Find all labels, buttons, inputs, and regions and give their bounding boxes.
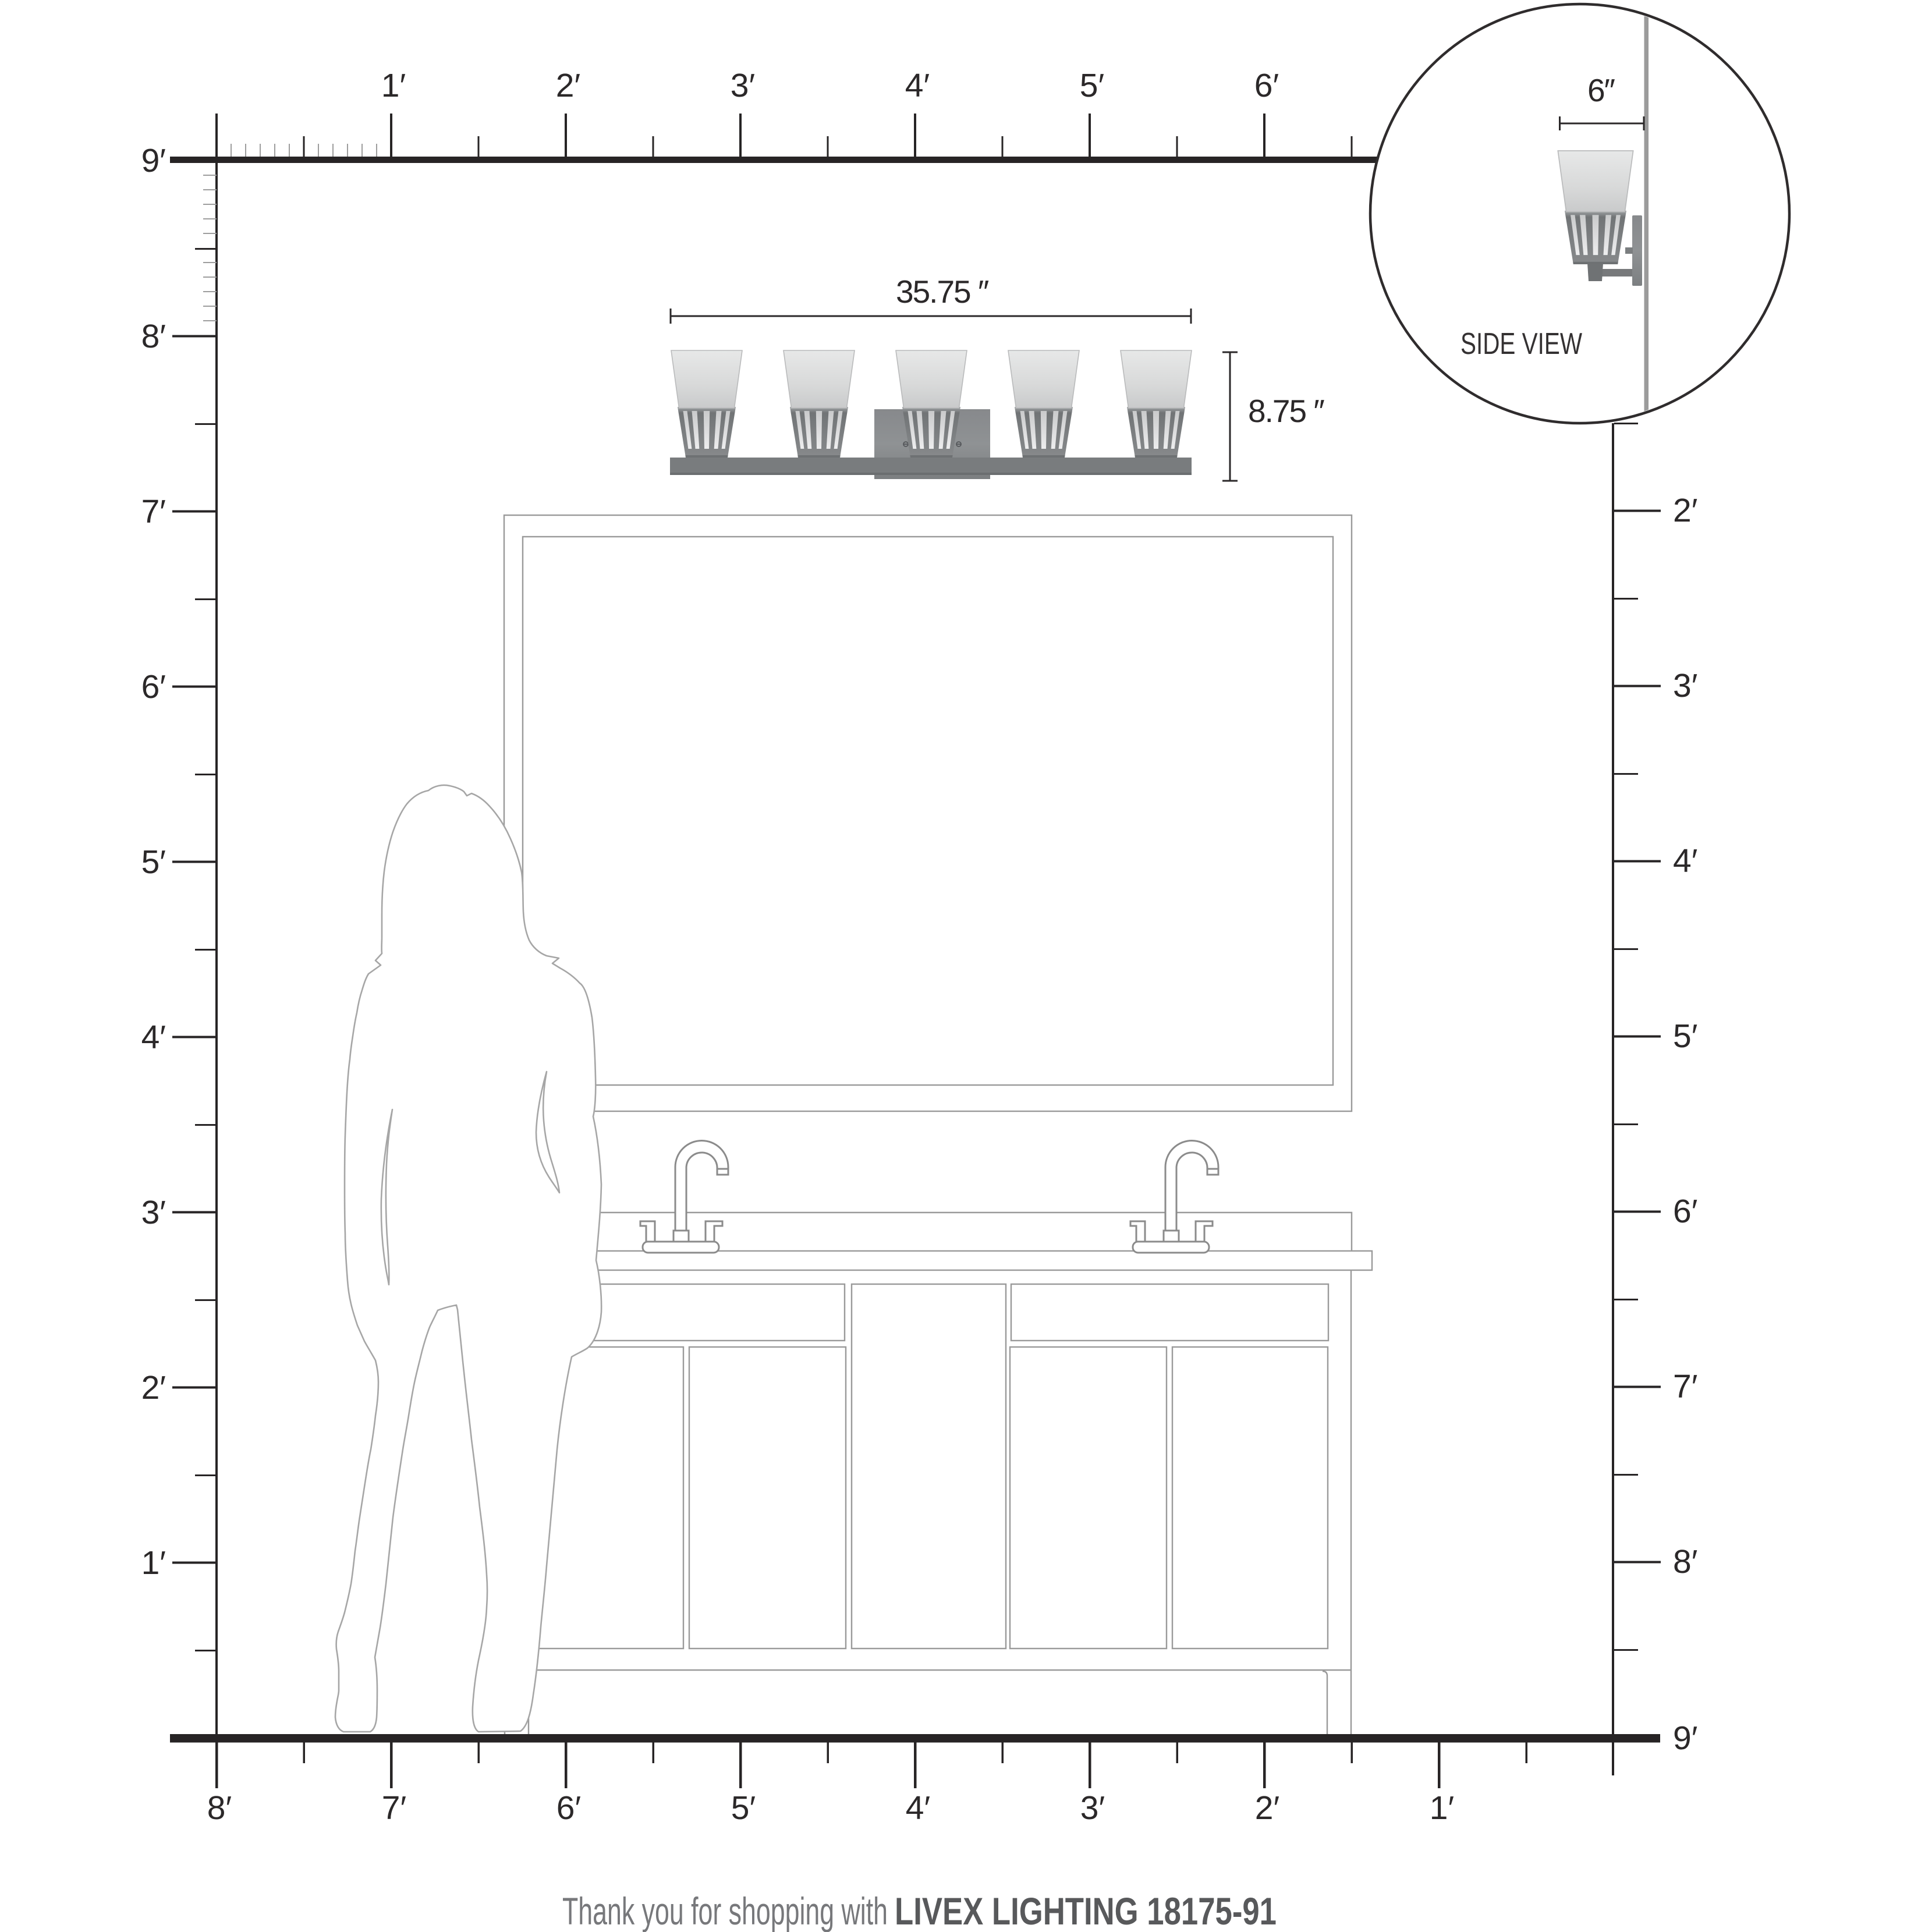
svg-text:2′: 2′ (1255, 1789, 1279, 1827)
svg-text:35.75 ″: 35.75 ″ (896, 274, 989, 310)
svg-text:1′: 1′ (141, 1544, 166, 1582)
svg-text:7′: 7′ (1673, 1368, 1697, 1405)
svg-text:9′: 9′ (141, 142, 166, 179)
svg-text:4′: 4′ (905, 67, 930, 104)
svg-text:8′: 8′ (207, 1789, 232, 1827)
svg-text:6′: 6′ (1254, 67, 1279, 104)
svg-text:5′: 5′ (1080, 67, 1104, 104)
svg-text:2′: 2′ (556, 67, 580, 104)
svg-text:6″: 6″ (1587, 72, 1615, 108)
svg-text:3′: 3′ (1673, 667, 1697, 704)
svg-text:3′: 3′ (1080, 1789, 1105, 1827)
svg-text:4′: 4′ (1673, 842, 1697, 880)
svg-text:9′: 9′ (1673, 1720, 1697, 1757)
svg-text:6′: 6′ (141, 668, 166, 706)
svg-text:3′: 3′ (731, 67, 755, 104)
svg-text:6′: 6′ (556, 1789, 581, 1827)
svg-text:8′: 8′ (1673, 1543, 1697, 1580)
svg-text:5′: 5′ (731, 1789, 756, 1827)
svg-text:7′: 7′ (141, 493, 166, 530)
svg-text:8.75 ″: 8.75 ″ (1248, 393, 1324, 429)
svg-text:LIVEX LIGHTING 18175-91: LIVEX LIGHTING 18175-91 (895, 1890, 1277, 1932)
svg-text:SIDE VIEW: SIDE VIEW (1460, 327, 1582, 361)
svg-text:3′: 3′ (141, 1194, 166, 1231)
svg-text:8′: 8′ (141, 318, 166, 355)
svg-text:2′: 2′ (141, 1369, 166, 1406)
svg-text:5′: 5′ (141, 843, 166, 881)
svg-text:4′: 4′ (906, 1789, 930, 1827)
svg-text:2′: 2′ (1673, 492, 1697, 529)
svg-text:Thank you for shopping with: Thank you for shopping with (562, 1890, 888, 1932)
svg-text:1′: 1′ (381, 67, 406, 104)
svg-text:1′: 1′ (1430, 1789, 1454, 1827)
svg-text:7′: 7′ (382, 1789, 406, 1827)
svg-text:5′: 5′ (1673, 1018, 1697, 1055)
svg-text:6′: 6′ (1673, 1193, 1697, 1230)
svg-text:4′: 4′ (141, 1019, 166, 1056)
